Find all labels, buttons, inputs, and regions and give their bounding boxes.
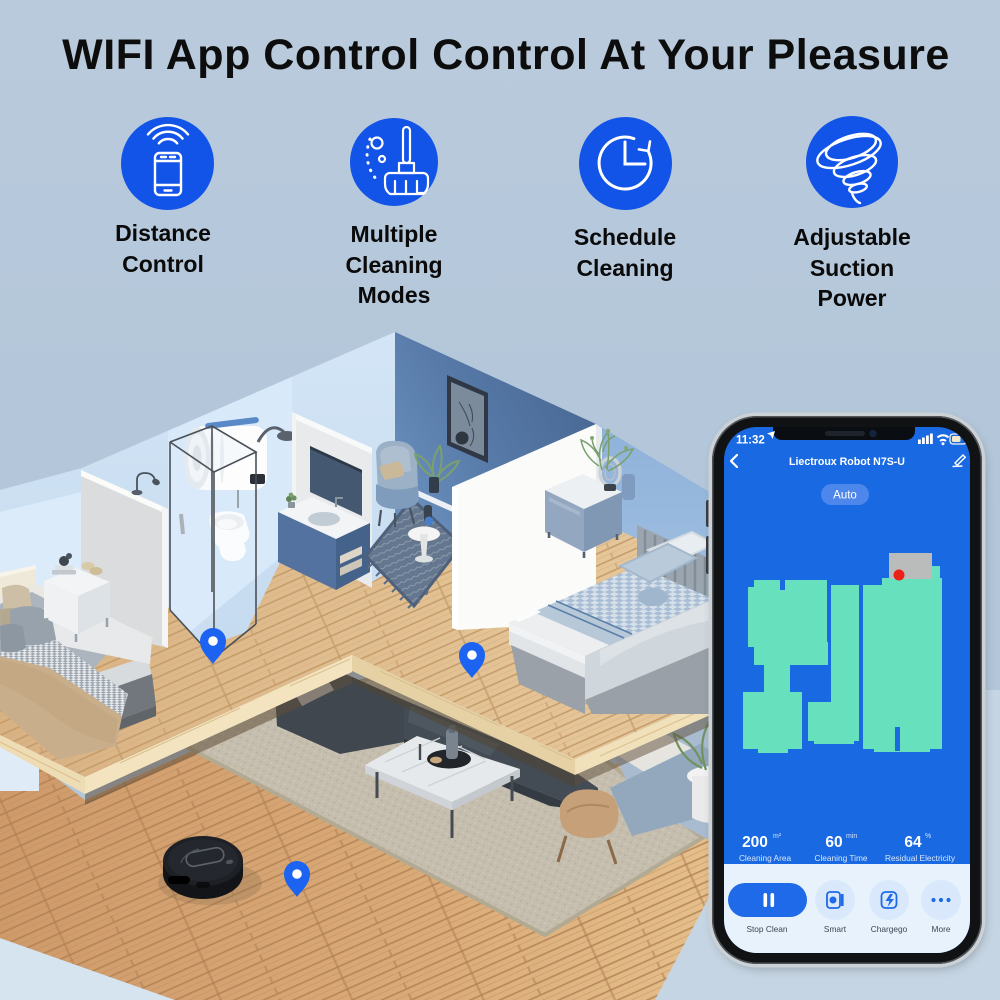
svg-text:200: 200	[742, 834, 768, 851]
svg-text:60: 60	[825, 834, 842, 851]
svg-text:64: 64	[904, 834, 922, 851]
svg-text:Liectroux Robot N7S-U: Liectroux Robot N7S-U	[789, 456, 905, 468]
svg-text:Smart: Smart	[824, 924, 847, 934]
svg-text:%: %	[925, 833, 931, 840]
svg-text:More: More	[932, 924, 951, 934]
svg-text:m²: m²	[773, 833, 782, 840]
svg-text:Cleaning Area: Cleaning Area	[739, 853, 792, 863]
svg-text:Auto: Auto	[833, 490, 857, 502]
svg-text:min: min	[846, 833, 857, 840]
svg-text:11:32: 11:32	[736, 435, 765, 447]
svg-text:Stop Clean: Stop Clean	[746, 924, 787, 934]
svg-text:Cleaning Time: Cleaning Time	[814, 853, 867, 863]
svg-text:Chargego: Chargego	[871, 924, 908, 934]
svg-text:Residual Electricity: Residual Electricity	[885, 853, 956, 863]
